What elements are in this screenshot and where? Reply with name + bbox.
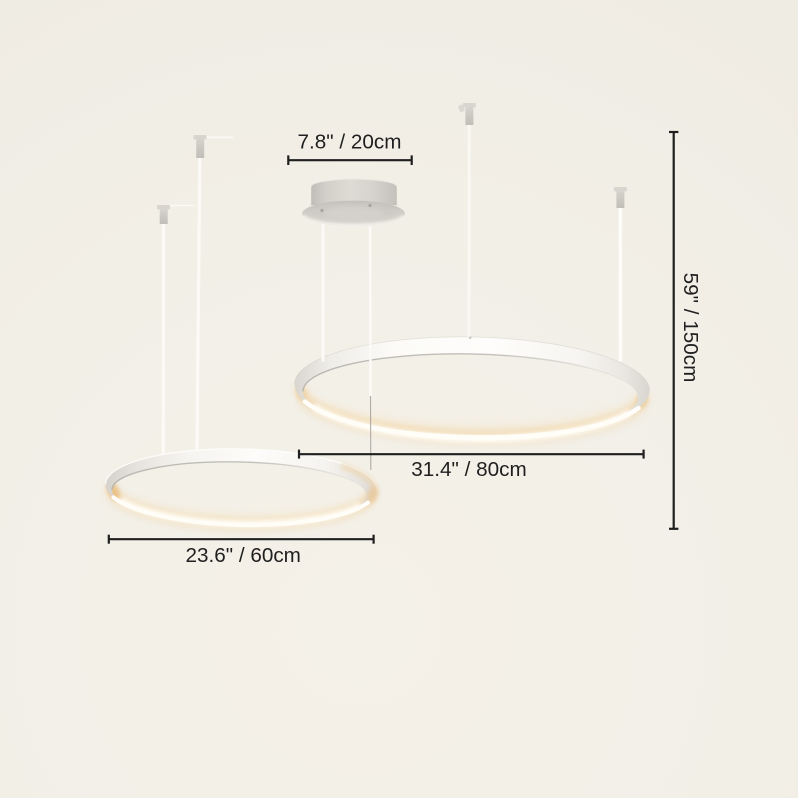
svg-text:23.6" / 60cm: 23.6" / 60cm	[185, 544, 300, 567]
svg-text:7.8" / 20cm: 7.8" / 20cm	[298, 130, 402, 153]
svg-text:59" / 150cm: 59" / 150cm	[679, 273, 702, 383]
svg-text:31.4" / 80cm: 31.4" / 80cm	[411, 458, 526, 481]
